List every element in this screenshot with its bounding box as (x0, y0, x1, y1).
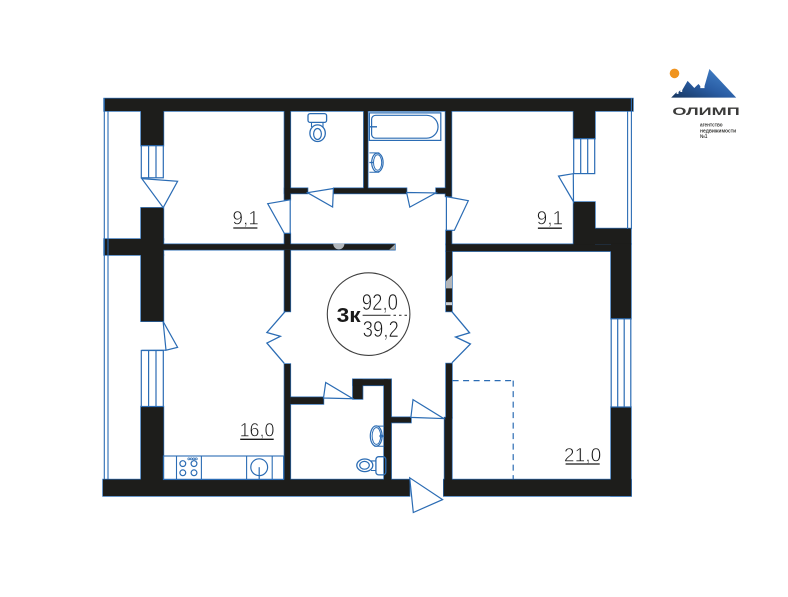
svg-text:3к: 3к (337, 304, 362, 327)
svg-text:9,1: 9,1 (232, 208, 259, 229)
svg-text:9,1: 9,1 (537, 208, 564, 229)
svg-text:№1: №1 (700, 134, 707, 140)
svg-text:92,0: 92,0 (362, 289, 398, 315)
svg-text:39,2: 39,2 (363, 316, 399, 342)
svg-text:ОЛИМП: ОЛИМП (672, 106, 739, 118)
svg-text:16,0: 16,0 (240, 421, 275, 442)
